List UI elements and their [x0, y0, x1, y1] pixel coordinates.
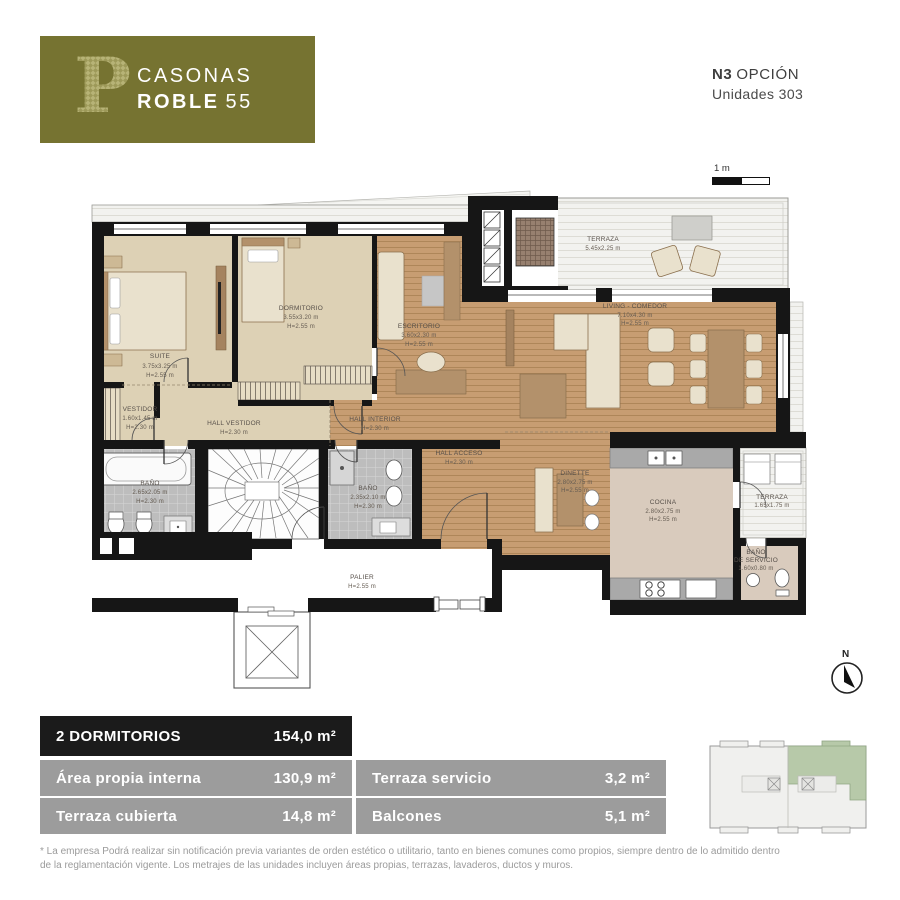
summary-row-value: 3,2 m²	[605, 770, 650, 787]
label-palier-h: H=2.55 m	[348, 584, 376, 590]
summary-row-value: 130,9 m²	[274, 770, 336, 787]
label-bano-servicio-name2: DE SERVICIO	[734, 558, 778, 565]
label-cocina-dim: 2.80x2.75 m	[645, 509, 680, 515]
label-suite-name: SUITE	[150, 354, 170, 361]
page: { "brand": {"letter":"P","line1":"CASONA…	[0, 0, 900, 900]
brand-line2-bold: ROBLE	[137, 91, 220, 113]
service-shaft	[468, 196, 568, 300]
label-hall-vestidor-h: H=2.30 m	[220, 430, 248, 436]
label-dormitorio-name: DORMITORIO	[279, 306, 323, 313]
north-arrow: N	[822, 640, 874, 702]
option-title: N3OPCIÓN	[712, 66, 799, 83]
label-bano1-dim: 2.65x2.05 m	[132, 490, 167, 496]
label-bano1-h: H=2.30 m	[136, 499, 164, 505]
brand-letter-icon: P	[73, 48, 135, 126]
scale-bar	[712, 177, 770, 185]
label-escritorio-dim: 3.60x2.30 m	[401, 333, 436, 339]
label-hall-vestidor-name: HALL VESTIDOR	[207, 421, 261, 428]
footnote-line1: * La empresa Podrá realizar sin notifica…	[40, 845, 864, 859]
label-terraza-dim: 5.45x2.25 m	[585, 246, 620, 252]
label-palier-name: PALIER	[350, 575, 374, 582]
summary-row-terraza-cubierta: Terraza cubierta 14,8 m²	[40, 798, 352, 834]
label-bano-servicio-name: BAÑO	[746, 550, 765, 557]
label-dormitorio-dim: 3.55x3.20 m	[283, 315, 318, 321]
north-label: N	[842, 649, 849, 660]
brand-line1: CASONAS	[137, 65, 253, 88]
summary-header-row: 2 DORMITORIOS 154,0 m²	[40, 716, 352, 756]
summary-row-terraza-servicio: Terraza servicio 3,2 m²	[356, 760, 666, 796]
floor-plan-svg	[88, 188, 812, 700]
summary-row-value: 14,8 m²	[282, 808, 336, 825]
footnote-line2: de la reglamentación vigente. Los metraj…	[40, 859, 864, 873]
summary-row-value: 5,1 m²	[605, 808, 650, 825]
units-subtitle: Unidades 303	[712, 86, 803, 102]
floor-plan: TERRAZA 5.45x2.25 m SUITE 3.75x3.25 m H=…	[88, 188, 812, 700]
label-terraza-name: TERRAZA	[587, 237, 619, 244]
label-living-dim: 7.10x4.30 m	[617, 313, 652, 319]
label-hall-interior-h: H=2.30 m	[361, 426, 389, 432]
brand-text: CASONAS ROBLE55	[137, 65, 253, 114]
brand-logo: P CASONAS ROBLE55	[40, 36, 315, 143]
label-living-name: LIVING - COMEDOR	[603, 304, 667, 311]
label-living-h: H=2.55 m	[621, 321, 649, 327]
footnote: * La empresa Podrá realizar sin notifica…	[40, 845, 864, 872]
label-suite-dim: 3.75x3.25 m	[142, 364, 177, 370]
label-vestidor-dim: 1.60x1.45 m	[122, 416, 157, 422]
label-dinette-h: H=2.55 m	[561, 488, 589, 494]
label-hall-interior-name: HALL INTERIOR	[349, 417, 400, 424]
label-cocina-h: H=2.55 m	[649, 517, 677, 523]
brand-line2-num: 55	[226, 91, 253, 113]
label-dinette-name: DINETTE	[560, 471, 589, 478]
label-terraza-servicio-name: TERRAZA	[756, 495, 788, 502]
label-vestidor-name: VESTIDOR	[123, 407, 158, 414]
label-vestidor-h: H=2.30 m	[126, 425, 154, 431]
label-bano2-name: BAÑO	[358, 486, 377, 493]
label-terraza-servicio-dim: 1.65x1.75 m	[754, 503, 789, 509]
brand-line2: ROBLE55	[137, 91, 253, 114]
summary-header-label: 2 DORMITORIOS	[56, 728, 181, 745]
label-dinette-dim: 2.80x2.75 m	[557, 480, 592, 486]
scale-bar-fill	[713, 178, 742, 184]
summary-row-balcones: Balcones 5,1 m²	[356, 798, 666, 834]
label-dormitorio-h: H=2.55 m	[287, 324, 315, 330]
label-escritorio-h: H=2.55 m	[405, 342, 433, 348]
summary-row-label: Terraza servicio	[372, 770, 492, 787]
summary-row-label: Balcones	[372, 808, 442, 825]
label-hall-acceso-h: H=2.30 m	[445, 460, 473, 466]
label-hall-acceso-name: HALL ACCESO	[435, 451, 482, 458]
label-bano2-dim: 2.35x2.10 m	[350, 495, 385, 501]
summary-row-label: Terraza cubierta	[56, 808, 177, 825]
summary-row-area-propia: Área propia interna 130,9 m²	[40, 760, 352, 796]
label-cocina-name: COCINA	[650, 500, 676, 507]
label-suite-h: H=2.55 m	[146, 373, 174, 379]
summary-row-label: Área propia interna	[56, 770, 201, 787]
label-bano-servicio-dim: 1.60x0.80 m	[738, 566, 773, 572]
scale-label: 1 m	[714, 163, 730, 174]
label-bano1-name: BAÑO	[140, 481, 159, 488]
elevator	[234, 607, 310, 688]
key-plan	[702, 736, 874, 840]
label-bano2-h: H=2.30 m	[354, 504, 382, 510]
option-code: N3	[712, 66, 732, 83]
label-escritorio-name: ESCRITORIO	[398, 324, 440, 331]
option-word: OPCIÓN	[736, 66, 799, 83]
brand-letter: P	[74, 48, 131, 126]
summary-header-value: 154,0 m²	[274, 728, 336, 745]
